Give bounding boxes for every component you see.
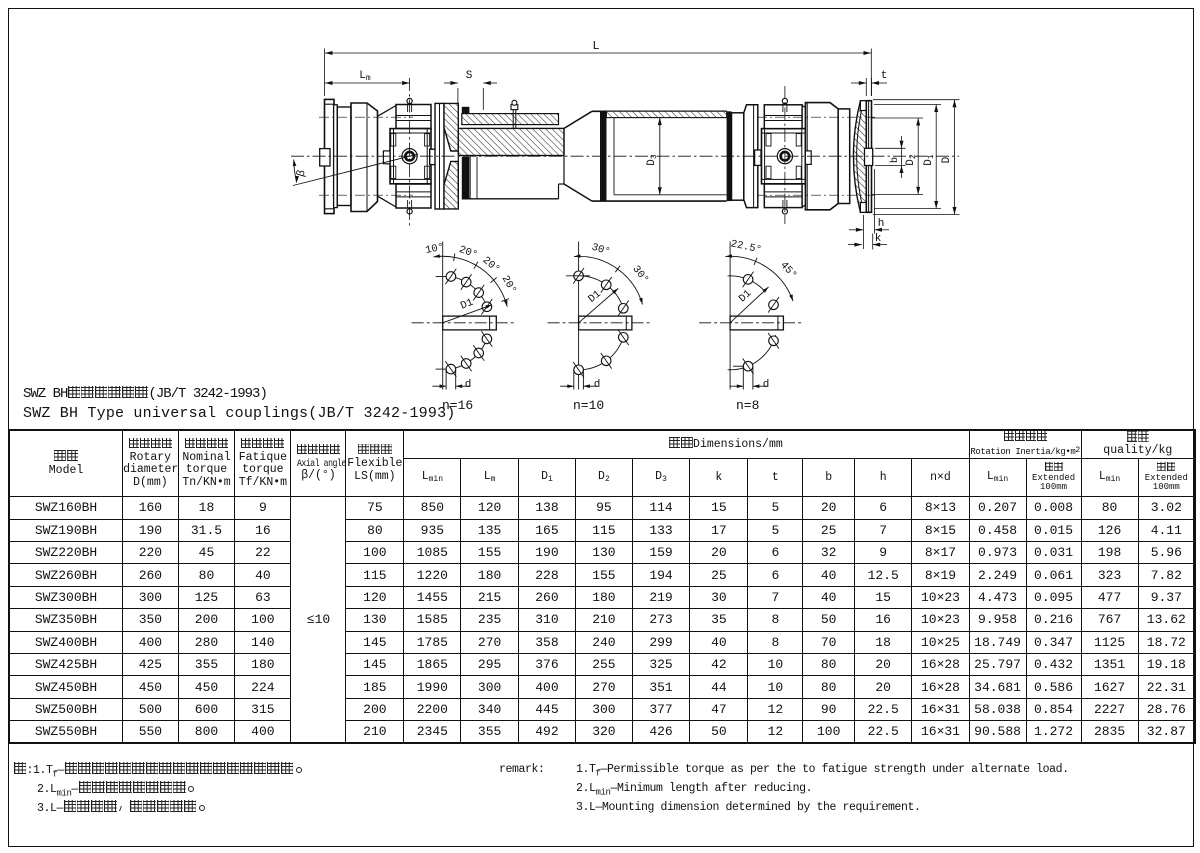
svg-text:Lm: Lm xyxy=(359,70,371,83)
svg-text:d: d xyxy=(763,379,770,391)
svg-text:d: d xyxy=(465,379,472,391)
svg-text:20°: 20° xyxy=(480,255,502,276)
svg-text:n=10: n=10 xyxy=(573,398,604,413)
svg-text:D1: D1 xyxy=(459,297,475,313)
svg-text:n=8: n=8 xyxy=(736,398,759,413)
svg-text:30°: 30° xyxy=(590,242,612,259)
svg-text:20°: 20° xyxy=(457,244,479,262)
svg-text:k: k xyxy=(875,233,882,245)
svg-text:D: D xyxy=(941,156,953,163)
svg-text:b: b xyxy=(889,157,901,163)
svg-text:L: L xyxy=(592,39,599,53)
svg-text:45°: 45° xyxy=(777,260,799,282)
svg-text:S: S xyxy=(466,70,473,82)
svg-text:30°: 30° xyxy=(630,264,651,286)
svg-text:h: h xyxy=(878,218,885,230)
svg-text:10°: 10° xyxy=(424,241,445,257)
svg-text:d: d xyxy=(594,379,601,391)
svg-text:D2: D2 xyxy=(905,154,918,166)
svg-text:22.5°: 22.5° xyxy=(729,238,762,256)
svg-text:t: t xyxy=(881,70,888,82)
